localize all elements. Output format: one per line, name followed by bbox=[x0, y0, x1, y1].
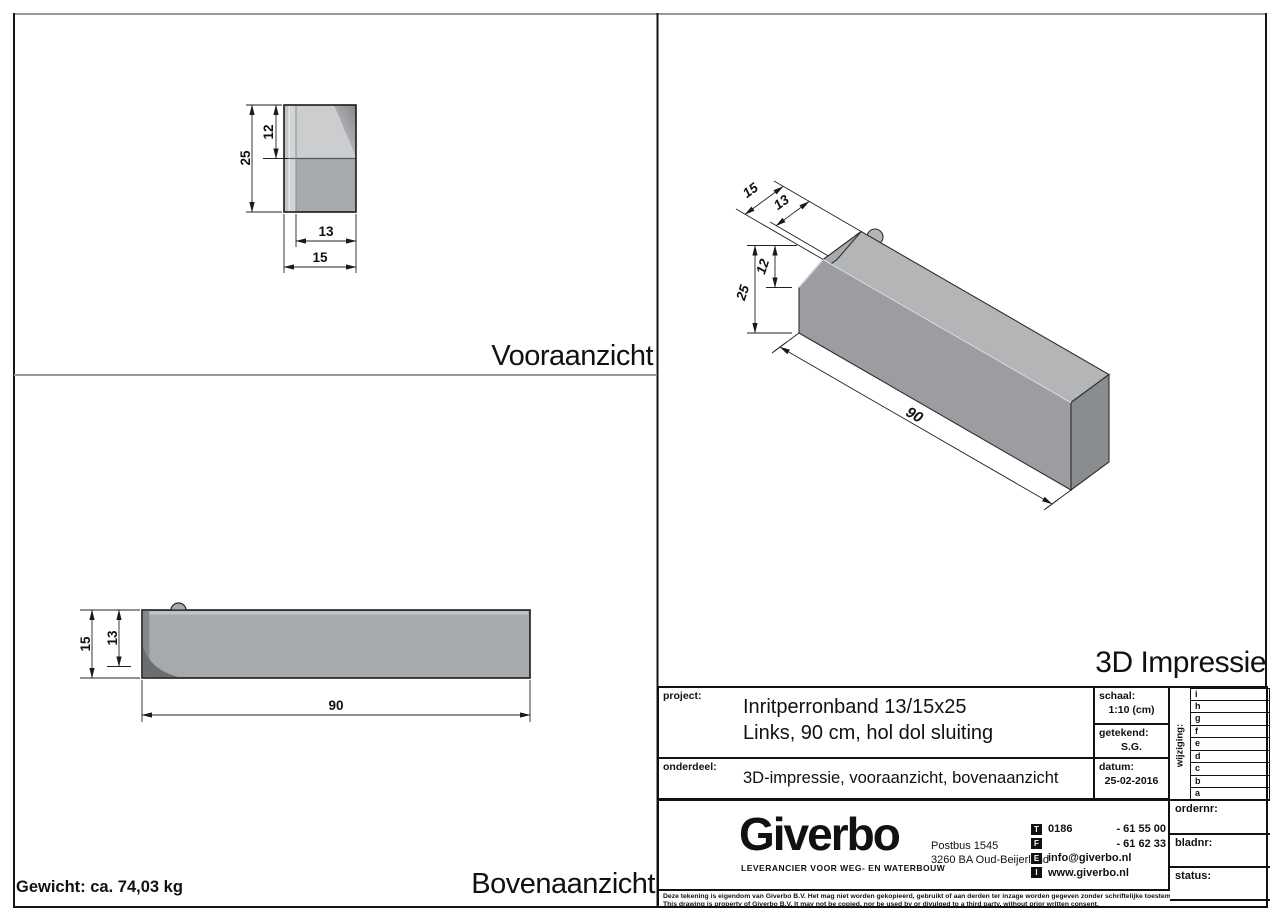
schaal-label: schaal: bbox=[1099, 690, 1135, 702]
iso-view-label: 3D Impressie bbox=[1095, 646, 1266, 680]
top-dim-13: 13 bbox=[105, 630, 120, 646]
company-logo: Giverbo bbox=[739, 811, 899, 857]
revision-row-a: a bbox=[1190, 788, 1270, 801]
iso-dim-25: 25 bbox=[733, 283, 752, 303]
contact-row-email: E info@giverbo.nl bbox=[1031, 851, 1166, 866]
wijziging-label: wijziging: bbox=[1175, 699, 1186, 793]
datum-cell: datum: 25-02-2016 bbox=[1095, 759, 1170, 801]
top-dol-bump bbox=[171, 603, 186, 610]
front-view-label: Vooraanzicht bbox=[491, 340, 653, 373]
getekend-cell: getekend: S.G. bbox=[1095, 725, 1170, 759]
email-icon: E bbox=[1031, 853, 1042, 864]
phone-prefix: 0186 bbox=[1048, 823, 1072, 835]
project-line1: Inritperronband 13/15x25 bbox=[743, 696, 967, 719]
revision-row-e: e bbox=[1190, 738, 1270, 751]
project-line2: Links, 90 cm, hol dol sluiting bbox=[743, 722, 993, 745]
bladnr-cell: bladnr: bbox=[1170, 835, 1270, 868]
onderdeel-cell: onderdeel: 3D-impressie, vooraanzicht, b… bbox=[659, 759, 1095, 801]
onderdeel-value: 3D-impressie, vooraanzicht, bovenaanzich… bbox=[743, 769, 1059, 788]
top-bar bbox=[142, 610, 530, 678]
disclaimer-cell: Deze tekening is eigendom van Giverbo B.… bbox=[659, 891, 1170, 910]
status-cell: status: bbox=[1170, 868, 1270, 901]
iso-dim-13: 13 bbox=[771, 192, 792, 213]
front-dim-15: 15 bbox=[312, 250, 328, 265]
contact-row-website: I www.giverbo.nl bbox=[1031, 866, 1166, 881]
email-address: info@giverbo.nl bbox=[1048, 852, 1131, 864]
contact-row-fax: F - 61 62 33 bbox=[1031, 837, 1166, 852]
getekend-value: S.G. bbox=[1095, 741, 1168, 753]
revision-rows: i h g f e d c b a bbox=[1190, 688, 1270, 801]
top-light-band bbox=[144, 612, 528, 615]
iso-dim-12: 12 bbox=[753, 257, 772, 276]
drawing-sheet: 25 12 13 15 15 13 90 bbox=[0, 0, 1280, 922]
website-icon: I bbox=[1031, 867, 1042, 878]
front-dim-25: 25 bbox=[238, 150, 253, 166]
top-dim-15: 15 bbox=[78, 636, 93, 652]
front-lower-block bbox=[296, 159, 356, 212]
fax-icon: F bbox=[1031, 838, 1042, 849]
wijziging-strip: wijziging: bbox=[1170, 688, 1190, 801]
iso-dim-90: 90 bbox=[903, 404, 927, 427]
bladnr-label: bladnr: bbox=[1175, 837, 1212, 849]
status-label: status: bbox=[1175, 870, 1211, 882]
front-view: 25 12 13 15 bbox=[238, 105, 356, 273]
schaal-value: 1:10 (cm) bbox=[1095, 704, 1168, 716]
front-dim-13: 13 bbox=[318, 224, 334, 239]
disclaimer-nl: Deze tekening is eigendom van Giverbo B.… bbox=[663, 893, 1166, 901]
revision-row-b: b bbox=[1190, 776, 1270, 789]
company-contacts: T 0186- 61 55 00 F - 61 62 33 E info@giv… bbox=[1031, 822, 1166, 880]
ordernr-label: ordernr: bbox=[1175, 803, 1218, 815]
top-view: 15 13 90 bbox=[78, 603, 530, 722]
iso-dim-15: 15 bbox=[740, 180, 761, 201]
ordernr-cell: ordernr: bbox=[1170, 801, 1270, 835]
project-label: project: bbox=[663, 690, 702, 702]
website-url: www.giverbo.nl bbox=[1048, 867, 1129, 879]
project-cell: project: Inritperronband 13/15x25 Links,… bbox=[659, 688, 1095, 759]
getekend-label: getekend: bbox=[1099, 727, 1149, 739]
top-view-label: Bovenaanzicht bbox=[471, 868, 655, 901]
company-cell: Giverbo LEVERANCIER VOOR WEG- EN WATERBO… bbox=[659, 801, 1170, 891]
front-dim-12: 12 bbox=[261, 124, 276, 139]
revision-table: wijziging: i h g f e d c b a bbox=[1170, 688, 1270, 801]
disclaimer-en: This drawing is property of Giverbo B.V.… bbox=[663, 901, 1166, 909]
phone-number: - 61 55 00 bbox=[1116, 823, 1166, 835]
revision-row-g: g bbox=[1190, 713, 1270, 726]
revision-row-c: c bbox=[1190, 763, 1270, 776]
title-block: project: Inritperronband 13/15x25 Links,… bbox=[657, 686, 1268, 908]
fax-number: - 61 62 33 bbox=[1116, 838, 1166, 850]
revision-row-h: h bbox=[1190, 701, 1270, 714]
iso-view: 15 13 25 12 90 bbox=[733, 180, 1109, 510]
revision-row-i: i bbox=[1190, 688, 1270, 701]
schaal-cell: schaal: 1:10 (cm) bbox=[1095, 688, 1170, 725]
weight-text: Gewicht: ca. 74,03 kg bbox=[16, 878, 183, 897]
company-tagline: LEVERANCIER VOOR WEG- EN WATERBOUW bbox=[741, 863, 945, 873]
top-dim-90: 90 bbox=[328, 698, 343, 713]
datum-value: 25-02-2016 bbox=[1095, 775, 1168, 787]
revision-row-f: f bbox=[1190, 726, 1270, 739]
revision-row-d: d bbox=[1190, 751, 1270, 764]
onderdeel-label: onderdeel: bbox=[663, 761, 717, 773]
contact-row-phone: T 0186- 61 55 00 bbox=[1031, 822, 1166, 837]
phone-icon: T bbox=[1031, 824, 1042, 835]
datum-label: datum: bbox=[1099, 761, 1134, 773]
